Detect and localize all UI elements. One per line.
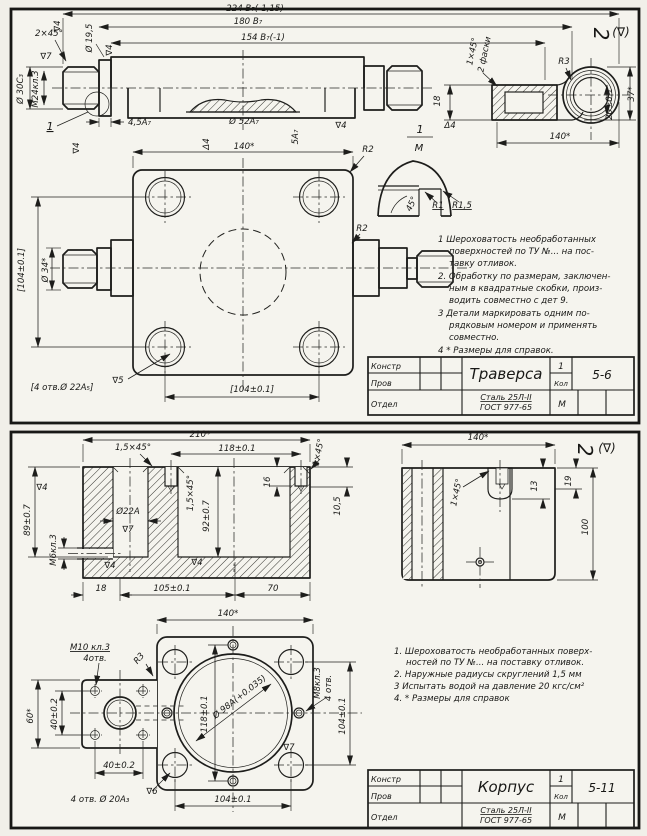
dimension-label: R3 [558,57,569,67]
dimension-label: 19 [564,476,574,487]
dimension-label: совместно. [449,333,499,343]
dimension-label: 13 [530,481,540,492]
dimension-label: 5A₇ [291,129,301,144]
dimension-label: 1. Шероховатость необработанных поверх- [394,647,592,657]
surface-finish-mark: 2 [573,444,597,457]
dimension-label: 89±0.7 [23,504,33,536]
sheet-traversa: 224 В₇(-1,15)180 В₇154 В₇(-1)2×45°∇7Ø 30… [11,4,639,423]
dimension-label: [104±0.1] [230,385,274,395]
dimension-label: 1 [417,123,424,136]
dimension-label: 3 Детали маркировать одним по- [438,309,590,319]
dimension-label: ∇4 [72,142,82,154]
dimension-label: 1,5×45° [115,443,151,453]
dimension-label: 180 В₇ [234,17,263,27]
dimension-label: 16 [263,476,273,487]
scale: М [558,813,566,823]
sheet-korpus: 210*1,5×45°118±0.11×45°∇489±0.7М6кл.3Ø22… [11,430,639,828]
surface-finish-mark: 2 [589,28,613,41]
part-name: Корпус [478,778,535,796]
dimension-label: 1 [47,120,54,133]
dimension-label: ∇4 [53,20,63,32]
dimension-label: 1 Шероховатость необработанных [438,235,597,245]
drawing-code: 5-11 [588,781,615,795]
dimension-label: 140* [234,142,255,152]
drawing-code: 5-6 [592,368,612,382]
dimension-label: 2. Наружные радиусы скруглений 1,5 мм [394,670,582,680]
title-row-label: Пров [371,379,392,388]
material: Сталь 25Л-II [480,806,532,815]
dimension-label: 104±0.1 [214,795,251,805]
dimension-label: поверхностей по ТУ №... на пос- [449,247,594,257]
dimension-label: R2 [356,224,367,234]
dimension-label: 2. Обработку по размерам, заключен- [438,272,610,282]
dimension-label: М24кл.3 [31,70,41,107]
dimension-label: M10 кл.3 [70,643,110,653]
dimension-label: 92±0.7 [202,500,212,532]
quantity-label: Кол [554,380,568,388]
dimension-label: ∇7 [282,743,295,753]
surface-finish-mark: (∇) [612,25,629,39]
dimension-label: М6кл.3 [49,534,59,566]
dimension-label: М8кл.3 [313,667,323,699]
dimension-label: ∇6 [145,787,158,797]
dimension-label: ∇4 [334,121,346,131]
dimension-label: R1 [432,201,443,211]
surface-finish-mark: (∇) [598,441,615,455]
dimension-label: 70 [268,584,279,594]
dimension-label: 4. * Размеры для справок [394,694,510,704]
dimension-label: 100 [581,518,591,535]
dimension-label: ∇4 [105,44,115,56]
dimension-label: [4 отв.Ø 22A₅] [31,382,94,393]
scale: М [558,400,566,410]
dimension-label: рядковым номером и применять [448,321,597,331]
scanned-drawing-page: 224 В₇(-1,15)180 В₇154 В₇(-1)2×45°∇7Ø 30… [0,0,647,836]
dimension-label: 140* [468,433,489,443]
dimension-label: ∇7 [121,525,134,535]
material-standard: ГОСТ 977-65 [480,403,532,412]
dimension-label: 1,5×45° [186,475,196,511]
dimension-label: 3 Испытать водой на давление 20 кгс/см² [394,682,585,692]
dimension-label: 20±0.1 [605,88,615,120]
dimension-label: ∇5 [111,376,123,386]
title-row-label: Констр [371,775,401,784]
dimension-label: 105±0.1 [153,584,190,594]
dimension-label: 140* [218,609,239,619]
dimension-label: ∇4 [190,558,202,568]
dimension-label: R1,5 [452,201,472,211]
dimension-label: 37* [627,86,637,102]
dimension-label: ∇4 [103,561,115,571]
dimension-label: Ø 34* [40,257,51,283]
dimension-label: водить совместно с дет 9. [449,296,568,306]
dimension-label: 18 [96,584,107,594]
dimension-label: 60* [26,708,36,724]
title-row-label: Пров [371,792,392,801]
dimension-label: [104±0.1] [17,248,27,292]
title-row-label: Констр [371,362,401,371]
dimension-label: ∇4 [35,483,47,493]
dimension-label: 118±0.1 [218,444,255,454]
dimension-label: ∇7 [39,52,52,62]
dimension-label: 40±0.2 [103,761,135,771]
dimension-label: М [415,143,424,154]
quantity: 1 [558,775,564,785]
dimension-label: 4отв. [83,654,107,664]
dimension-label: ностей по ТУ №... на поставку отливок. [406,658,584,668]
title-row-label: Отдел [371,400,398,409]
dimension-label: 18 [433,95,443,106]
dimension-label: 224 В₇(-1,15) [226,4,283,14]
dimension-label: 140* [550,132,571,142]
dimension-label: Ø22A [115,506,140,517]
quantity: 1 [558,362,564,372]
dimension-label: 4 отв. [324,675,334,701]
quantity-label: Кол [554,793,568,801]
drawing-canvas: 224 В₇(-1,15)180 В₇154 В₇(-1)2×45°∇7Ø 30… [0,0,647,836]
material-standard: ГОСТ 977-65 [480,816,532,825]
dimension-label: 4 отв. Ø 20A₃ [71,794,130,805]
dimension-label: 10,5 [333,496,343,515]
dimension-label: тавку отливок. [449,259,517,269]
dimension-label: 118±0.1 [200,695,210,732]
dimension-label: 210* [190,430,211,440]
dimension-label: Ø 19,5 [84,24,95,54]
dimension-label: Ø 30C₃ [15,74,26,105]
title-row-label: Отдел [371,813,398,822]
part-name: Траверса [470,365,543,383]
dimension-label: R2 [362,145,373,155]
dimension-label: 104±0.1 [338,697,348,734]
dimension-label: 40±0.2 [50,698,60,730]
dimension-label: 4 * Размеры для справок. [438,346,554,356]
dimension-label: 154 В₇(-1) [241,33,285,43]
material: Сталь 25Л-II [480,393,532,402]
dimension-label: Δ4 [443,121,455,131]
dimension-label: ным в квадратные скобки, произ- [449,284,602,294]
dimension-label: Ø 52A₇ [228,116,259,127]
dimension-label: Δ4 [202,138,212,150]
dimension-label: 4,5A₇ [128,118,152,128]
